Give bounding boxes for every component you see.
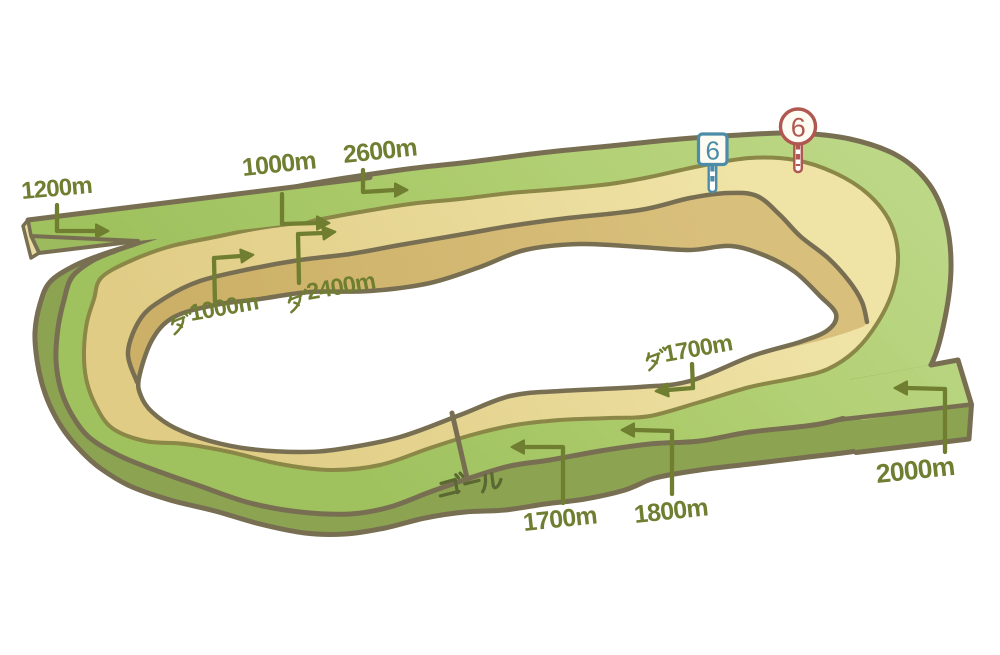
svg-text:6: 6	[791, 113, 806, 143]
svg-text:6: 6	[705, 136, 719, 166]
